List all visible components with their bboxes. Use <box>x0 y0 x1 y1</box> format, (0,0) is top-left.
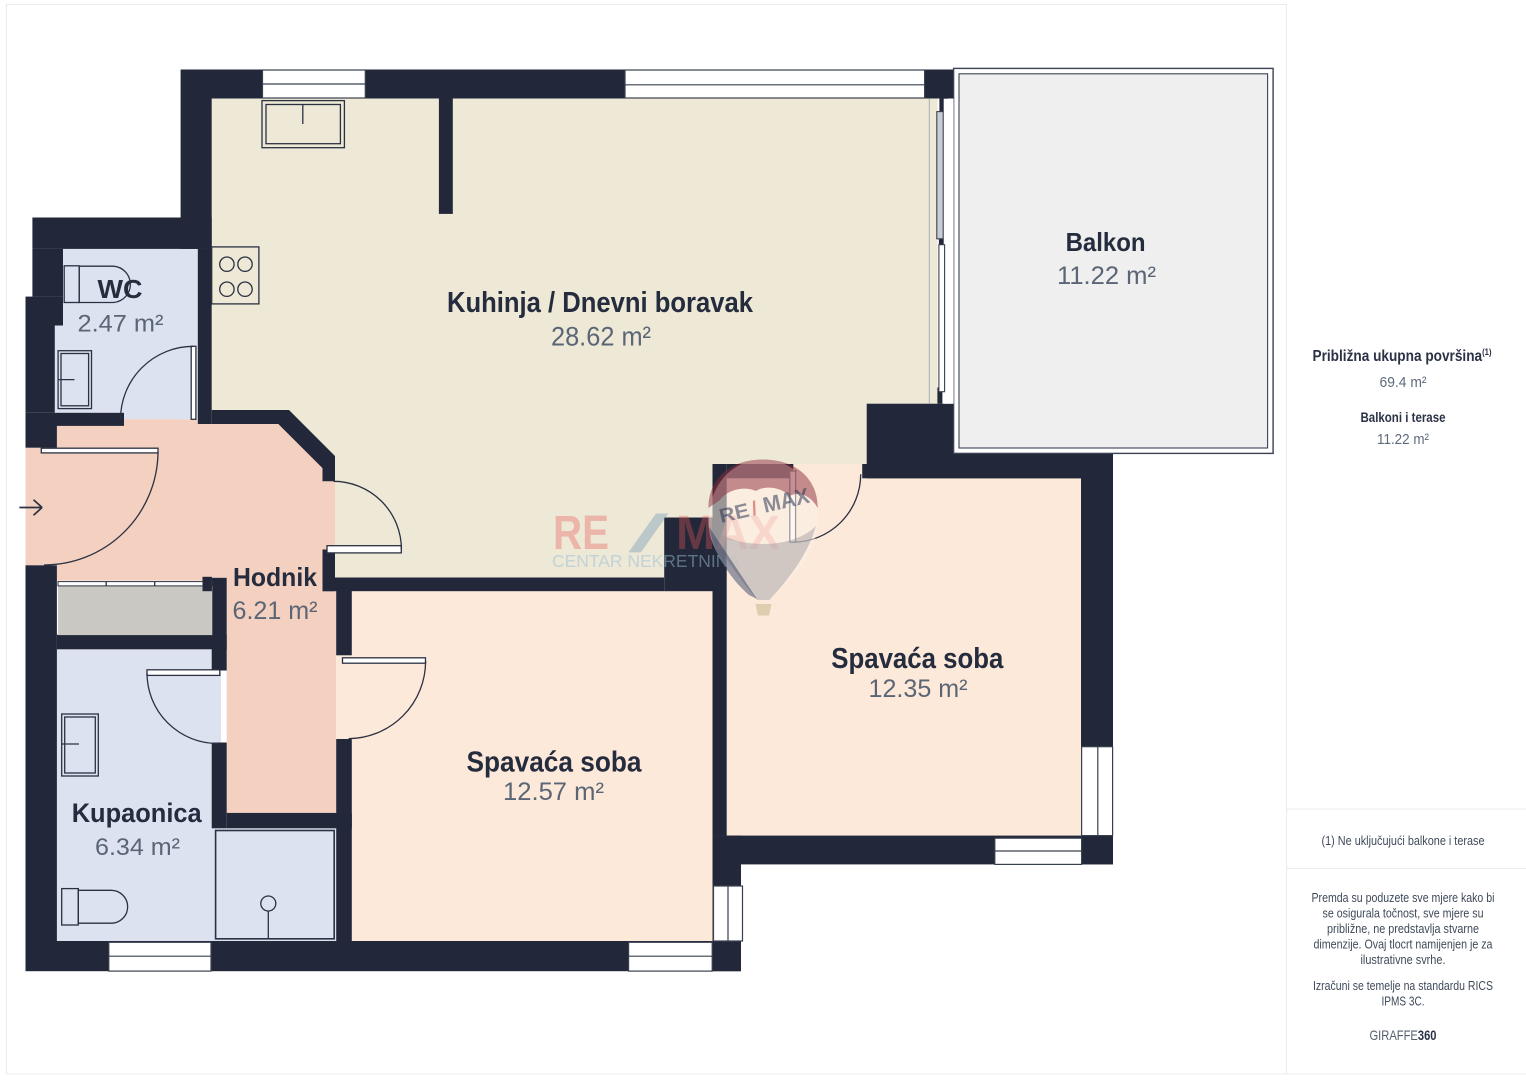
svg-text:Premda su poduzete sve mjere k: Premda su poduzete sve mjere kako bi <box>1312 891 1495 905</box>
svg-text:11.22 m²: 11.22 m² <box>1377 431 1429 448</box>
svg-text:12.57 m²: 12.57 m² <box>503 778 604 806</box>
svg-text:Spavaća soba: Spavaća soba <box>467 747 643 779</box>
svg-text:69.4 m²: 69.4 m² <box>1380 374 1427 391</box>
svg-text:se osigurala točnost, sve mjer: se osigurala točnost, sve mjere su <box>1323 907 1484 921</box>
svg-text:Hodnik: Hodnik <box>233 562 318 592</box>
svg-text:6.21 m²: 6.21 m² <box>233 597 318 625</box>
svg-text:Spavaća soba: Spavaća soba <box>831 643 1004 675</box>
svg-text:(1) Ne uključujući balkone i t: (1) Ne uključujući balkone i terase <box>1322 834 1485 848</box>
svg-text:11.22 m²: 11.22 m² <box>1057 262 1156 290</box>
svg-text:12.35 m²: 12.35 m² <box>869 675 968 703</box>
svg-text:IPMS 3C.: IPMS 3C. <box>1382 995 1425 1009</box>
svg-text:Izračuni se temelje na standar: Izračuni se temelje na standardu RICS <box>1313 979 1493 993</box>
svg-text:28.62 m²: 28.62 m² <box>551 322 651 352</box>
svg-text:dimenzije. Ovaj tlocrt namijen: dimenzije. Ovaj tlocrt namijenjen je za <box>1314 938 1493 952</box>
svg-text:Balkoni i terase: Balkoni i terase <box>1361 410 1446 425</box>
svg-text:ilustrativne svrhe.: ilustrativne svrhe. <box>1361 953 1446 967</box>
svg-text:Kuhinja / Dnevni boravak: Kuhinja / Dnevni boravak <box>447 287 754 319</box>
svg-text:WC: WC <box>98 274 143 304</box>
svg-text:GIRAFFE360: GIRAFFE360 <box>1370 1027 1437 1043</box>
svg-text:Balkon: Balkon <box>1066 227 1146 257</box>
svg-text:CENTAR NEKRETNINA: CENTAR NEKRETNINA <box>552 551 740 571</box>
svg-text:2.47 m²: 2.47 m² <box>78 311 164 338</box>
svg-text:6.34 m²: 6.34 m² <box>95 834 180 861</box>
svg-text:Kupaonica: Kupaonica <box>72 798 203 828</box>
svg-text:Približna ukupna površina(1): Približna ukupna površina(1) <box>1313 347 1492 365</box>
svg-text:približne, ne predstavlja stva: približne, ne predstavlja stvarne <box>1327 922 1479 936</box>
